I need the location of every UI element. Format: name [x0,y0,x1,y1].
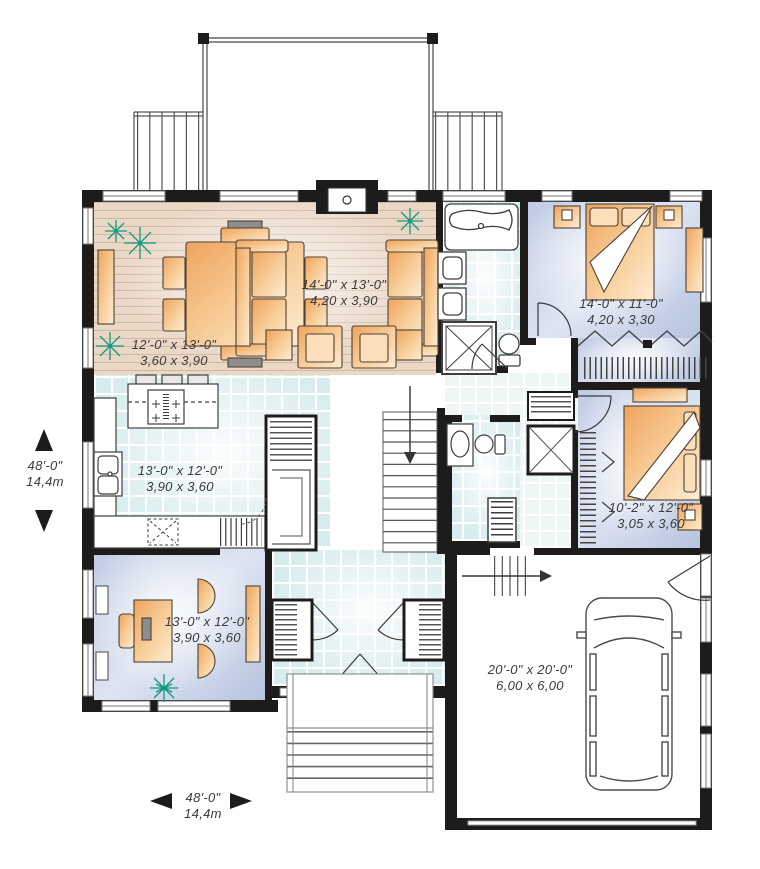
dimension-left: 48'-0" 14,4m [26,458,64,489]
dim-left-metric: 14,4m [26,474,64,490]
garage-van [577,598,681,790]
fireplace [328,188,366,212]
master-metric: 4,20 x 3,30 [579,312,663,328]
garage-steps [462,570,552,582]
arrow-down-icon [35,510,53,532]
room-label-kitchen: 13'-0" x 12'-0" 3,90 x 3,60 [138,463,222,494]
arrow-right-icon [230,793,252,809]
dim-bottom-metric: 14,4m [184,806,222,822]
dining-imperial: 12'-0" x 13'-0" [132,337,216,353]
room-label-dining: 12'-0" x 13'-0" 3,60 x 3,90 [132,337,216,368]
room-label-master-bedroom: 14'-0" x 11'-0" 4,20 x 3,30 [579,296,663,327]
office-imperial: 13'-0" x 12'-0" [165,614,249,630]
room-label-garage: 20'-0" x 20'-0" 6,00 x 6,00 [488,662,572,693]
kitchen-imperial: 13'-0" x 12'-0" [138,463,222,479]
deck-stairs-right [433,112,502,190]
room-label-office: 13'-0" x 12'-0" 3,90 x 3,60 [165,614,249,645]
front-porch [287,674,433,792]
bedroom2-imperial: 10'-2" x 12'-0" [609,500,693,516]
dimension-bottom: 48'-0" 14,4m [184,790,222,821]
kitchen-metric: 3,90 x 3,60 [138,479,222,495]
arrow-up-icon [35,429,53,451]
office-metric: 3,90 x 3,60 [165,630,249,646]
bedroom2-metric: 3,05 x 3,60 [609,516,693,532]
deck-railing [198,33,438,190]
plan-linework [0,0,760,869]
dim-left-imperial: 48'-0" [26,458,64,474]
kitchen-fixtures [94,375,265,548]
living-metric: 4,20 x 3,90 [302,293,386,309]
garage-metric: 6,00 x 6,00 [488,678,572,694]
dim-bottom-imperial: 48'-0" [184,790,222,806]
room-label-bedroom-2: 10'-2" x 12'-0" 3,05 x 3,60 [609,500,693,531]
floor-plan: 14'-0" x 13'-0" 4,20 x 3,90 12'-0" x 13'… [0,0,760,869]
entry-closets [272,600,444,660]
master-imperial: 14'-0" x 11'-0" [579,296,663,312]
living-imperial: 14'-0" x 13'-0" [302,277,386,293]
master-bedroom-furniture [554,204,703,300]
master-closet [578,331,712,368]
arrow-left-icon [150,793,172,809]
room-label-living: 14'-0" x 13'-0" 4,20 x 3,90 [302,277,386,308]
powder-room-fixtures [447,424,516,542]
deck-stairs-left [134,112,203,190]
garage-imperial: 20'-0" x 20'-0" [488,662,572,678]
linen-closet [528,392,574,474]
basement-stairs [383,386,437,552]
dining-metric: 3,60 x 3,90 [132,353,216,369]
